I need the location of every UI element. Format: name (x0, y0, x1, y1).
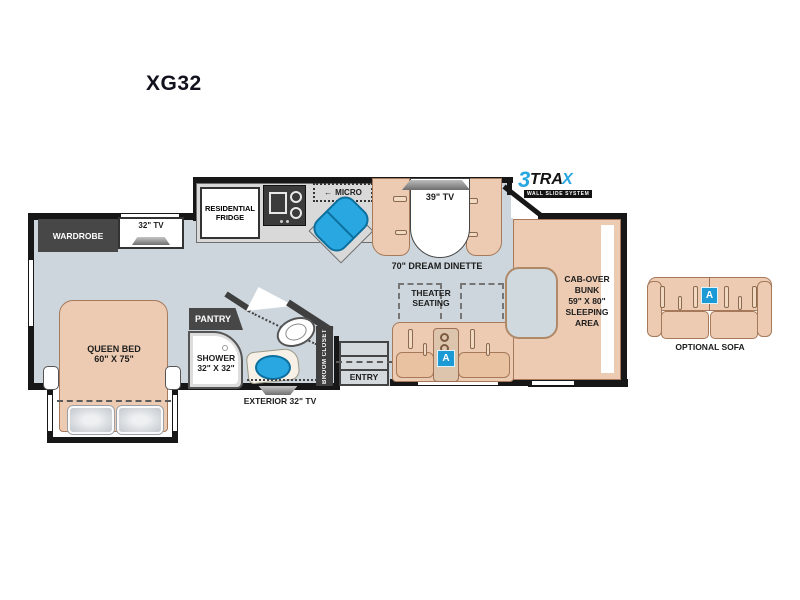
theater-belt-1 (408, 329, 413, 349)
exterior-tv-label: EXTERIOR 32" TV (228, 397, 332, 407)
dinette-label: 70" DREAM DINETTE (368, 261, 506, 271)
nightstand-left (43, 366, 59, 390)
optional-sofa-cushion-left (661, 311, 709, 339)
nightstand-right (165, 366, 181, 390)
pantry-label: PANTRY (195, 314, 231, 324)
optional-sofa-belt-6 (752, 286, 757, 308)
toilet-seat (283, 320, 309, 343)
broom-closet-label: BROOM CLOSET (322, 329, 328, 384)
fridge-label-2: FRIDGE (216, 213, 244, 222)
optional-sofa-cushion-right (710, 311, 758, 339)
pillow-right (117, 406, 163, 434)
window-bedslide-left (48, 395, 52, 431)
bed-slide-line (57, 400, 171, 402)
cabover-label-3: 59" X 80" (556, 296, 618, 307)
entry-label: ENTRY (341, 373, 387, 383)
cooktop-burner-circle-2 (290, 207, 302, 219)
theater-label: THEATER SEATING (399, 289, 463, 309)
wall-windshield (620, 213, 627, 387)
pillow-left (68, 406, 114, 434)
optional-sofa-badge-a: A (701, 287, 718, 304)
wardrobe-label: WARDROBE (53, 231, 104, 241)
entry-step-line-1 (341, 355, 387, 357)
page-title: XG32 (146, 72, 216, 96)
queen-bed-name: QUEEN BED (64, 344, 164, 354)
theater-cupholder-1 (440, 333, 449, 342)
fridge-label-1: RESIDENTIAL (205, 204, 255, 213)
wall-dinette-right (507, 177, 512, 195)
queen-bed-label: QUEEN BED 60" X 75" (64, 344, 164, 365)
theater-belt-3 (470, 329, 475, 349)
window-bedslide-right (173, 395, 177, 431)
cooktop-burner-square (269, 192, 287, 214)
3trax-logo-x: X (562, 171, 573, 189)
cooktop-knob-1 (280, 220, 283, 223)
cabover-label-1: CAB-OVER (556, 274, 618, 285)
theater-cushion-right (458, 352, 510, 378)
cabover-label-2: BUNK (556, 285, 618, 296)
bath-slide-dotline (247, 379, 321, 381)
dinette-armrest-1 (393, 196, 407, 202)
3trax-logo-tagline: WALL SLIDE SYSTEM (524, 190, 592, 198)
broom-closet: BROOM CLOSET (316, 326, 333, 386)
cooktop (263, 185, 306, 226)
micro-arrow-icon: ← (324, 188, 332, 197)
theater-label-2: SEATING (399, 299, 463, 309)
bedroom-tv-label: 32" TV (120, 221, 182, 230)
cabover-label-5: AREA (556, 318, 618, 329)
bedroom-tv-icon (132, 237, 170, 245)
exterior-tv-icon (256, 386, 300, 395)
cooktop-knob-2 (286, 220, 289, 223)
wardrobe: WARDROBE (38, 219, 118, 252)
entry-steps: ENTRY (339, 341, 389, 386)
entry-step-line-2 (341, 369, 387, 371)
theater-cushion-left (396, 352, 434, 378)
3trax-logo-tra: TRA (530, 171, 563, 189)
cabover-label: CAB-OVER BUNK 59" X 80" SLEEPING AREA (556, 274, 618, 329)
dinette-bench-right (466, 178, 502, 256)
residential-fridge: RESIDENTIAL FRIDGE (200, 187, 260, 239)
dinette-tv-icon (402, 180, 470, 190)
optional-sofa-belt-4 (724, 286, 729, 308)
dinette-armrest-2 (395, 230, 407, 235)
queen-bed-size: 60" X 75" (64, 354, 164, 364)
theater-badge-a: A (437, 350, 455, 367)
optional-sofa-belt-1 (660, 286, 665, 308)
3trax-logo: 3 TRA X WALL SLIDE SYSTEM (518, 169, 588, 201)
wall-bedslide-bottom (47, 437, 178, 443)
dinette-tv-label: 39" TV (415, 192, 465, 202)
bath-sink (255, 355, 291, 380)
optional-sofa-belt-3 (693, 286, 698, 308)
floorplan-canvas: XG32 3 TRA X WALL SLIDE SYSTEM WARDROBE … (0, 0, 800, 600)
shower-drain (222, 345, 228, 351)
window-rear (29, 260, 33, 326)
optional-sofa-belt-5 (738, 296, 742, 310)
optional-sofa-label: OPTIONAL SOFA (660, 343, 760, 353)
kitchen-sink-divider (327, 211, 354, 238)
window-bottom-cab (532, 381, 574, 385)
pantry: PANTRY (189, 308, 243, 330)
theater-belt-2 (423, 343, 427, 356)
dinette-tv-cylinder (410, 178, 470, 258)
cabover-bunk-window (505, 267, 558, 339)
shower-label: SHOWER 32" X 32" (190, 354, 242, 374)
shower-label-2: 32" X 32" (190, 364, 242, 374)
optional-sofa-arm-right (757, 281, 772, 337)
cabover-label-4: SLEEPING (556, 307, 618, 318)
theater-belt-4 (486, 343, 490, 356)
cooktop-burner-circle-1 (290, 191, 302, 203)
optional-sofa-belt-2 (678, 296, 682, 310)
